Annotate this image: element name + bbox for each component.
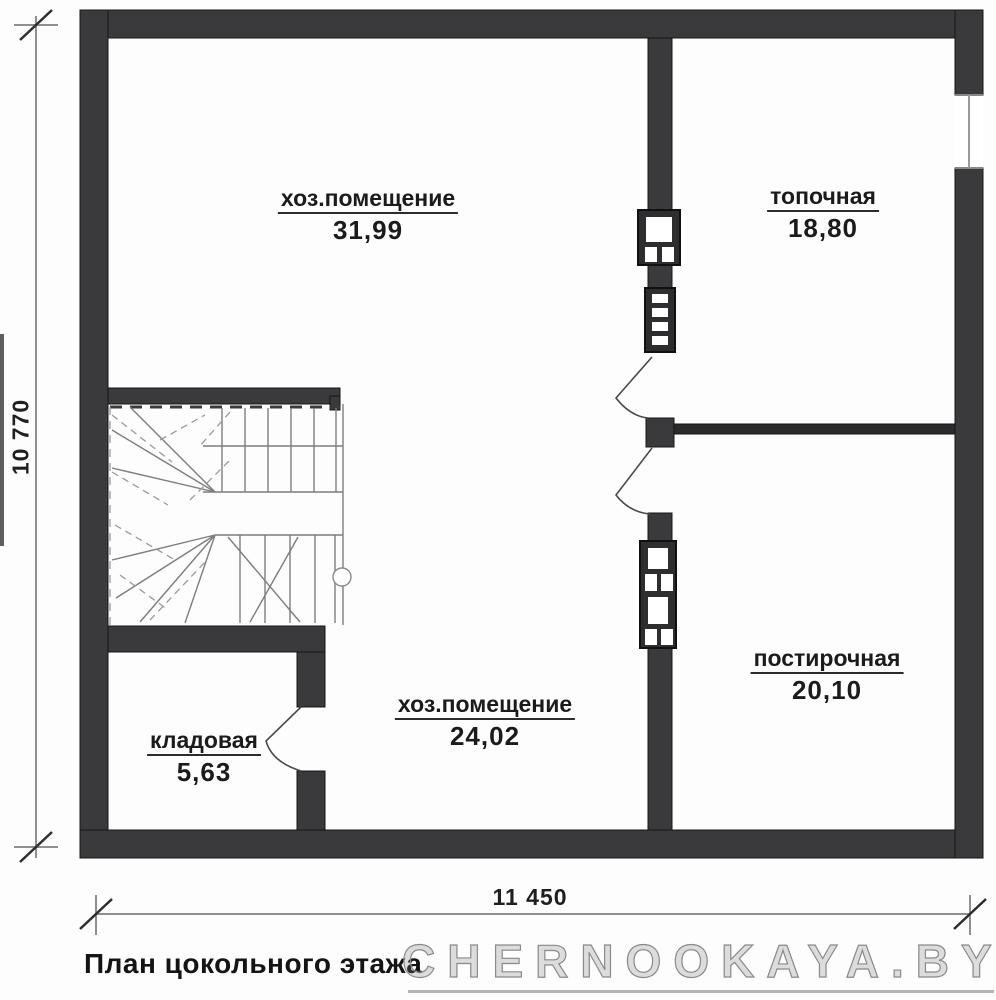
- room-area: 31,99: [278, 216, 458, 245]
- partition-wall: [674, 424, 955, 434]
- floor-plan-page: хоз.помещение 31,99 топочная 18,80 пости…: [0, 0, 996, 1000]
- room-label-laundry: постирочная 20,10: [751, 646, 904, 705]
- room-name: хоз.помещение: [395, 692, 575, 720]
- room-label-storage: кладовая 5,63: [147, 728, 261, 787]
- watermark-text: CHERNOOKAYA.BY: [402, 934, 996, 988]
- dimension-lines: [0, 10, 986, 935]
- room-name: кладовая: [147, 728, 261, 756]
- door-swing-storage: [266, 707, 301, 771]
- dimension-bottom-label: 11 450: [492, 884, 567, 911]
- page-title: План цокольного этажа: [84, 948, 422, 980]
- room-label-utility-top: хоз.помещение 31,99: [278, 186, 458, 245]
- window-icon: [955, 95, 983, 168]
- door-swing-middle: [616, 448, 652, 514]
- watermark-underline: [408, 990, 994, 993]
- room-label-utility-bottom: хоз.помещение 24,02: [395, 692, 575, 751]
- chimney-block-bottom: [640, 541, 676, 648]
- room-name: хоз.помещение: [278, 186, 458, 214]
- room-area: 18,80: [767, 214, 879, 243]
- interior-center-wall: [646, 38, 674, 830]
- floor-plan-drawing: [0, 0, 996, 1000]
- room-name: постирочная: [751, 646, 904, 674]
- room-area: 5,63: [147, 758, 261, 787]
- room-label-boiler: топочная 18,80: [767, 184, 879, 243]
- dimension-left-label: 10 770: [8, 399, 35, 475]
- staircase: [110, 404, 351, 625]
- room-name: топочная: [767, 184, 879, 212]
- scan-edge-artifact: [0, 334, 4, 546]
- door-swing-top: [616, 357, 652, 418]
- room-area: 24,02: [395, 722, 575, 751]
- room-area: 20,10: [751, 676, 904, 705]
